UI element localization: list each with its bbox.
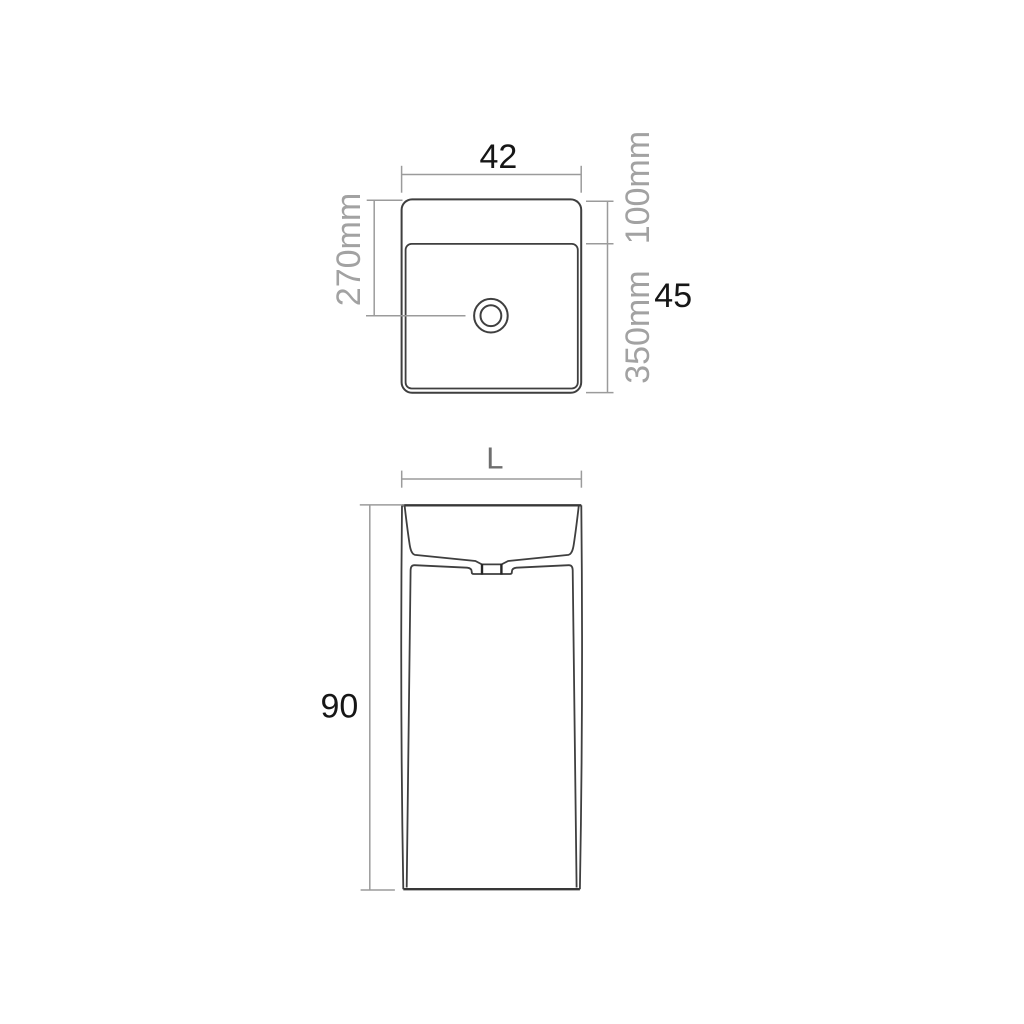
svg-text:350mm: 350mm — [619, 270, 657, 383]
svg-text:100mm: 100mm — [619, 131, 657, 244]
svg-text:270mm: 270mm — [330, 193, 368, 306]
svg-text:L: L — [486, 440, 503, 475]
svg-text:90: 90 — [320, 687, 358, 725]
svg-text:45: 45 — [654, 277, 692, 315]
svg-text:42: 42 — [479, 138, 517, 176]
